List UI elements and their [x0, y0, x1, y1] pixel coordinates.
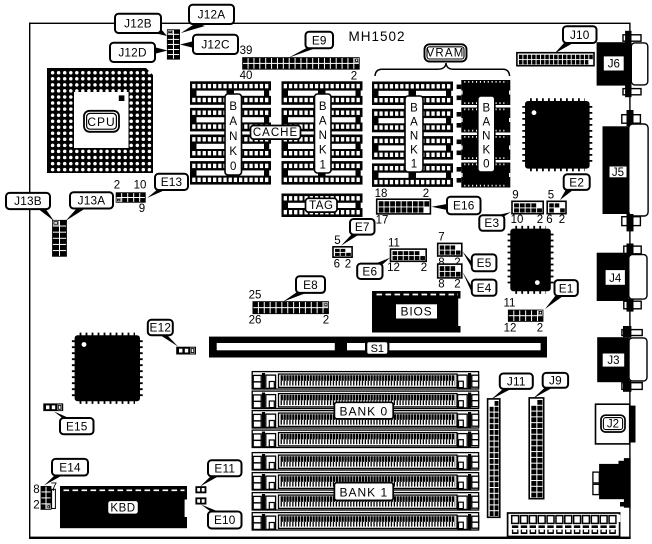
svg-text:18: 18: [375, 188, 388, 200]
svg-text:N: N: [229, 131, 237, 143]
svg-text:J12D: J12D: [118, 46, 146, 60]
svg-text:6: 6: [546, 214, 552, 226]
svg-text:N: N: [410, 130, 418, 142]
svg-text:E7: E7: [355, 220, 370, 234]
svg-text:26: 26: [249, 315, 262, 327]
svg-text:5: 5: [334, 235, 340, 247]
svg-text:A: A: [319, 115, 327, 127]
svg-text:J12A: J12A: [198, 8, 226, 22]
svg-text:BANK 0: BANK 0: [339, 404, 388, 418]
svg-text:J10: J10: [570, 28, 590, 42]
svg-text:BANK 1: BANK 1: [339, 485, 388, 499]
svg-text:CPU: CPU: [87, 115, 115, 129]
svg-text:2: 2: [454, 279, 460, 291]
svg-text:0: 0: [483, 158, 489, 170]
svg-text:E9: E9: [312, 33, 327, 47]
svg-text:J6: J6: [608, 59, 620, 71]
svg-text:B: B: [229, 101, 237, 113]
svg-text:2: 2: [559, 214, 565, 226]
svg-text:A: A: [410, 116, 418, 128]
svg-text:J13B: J13B: [14, 194, 42, 208]
svg-text:J4: J4: [609, 273, 622, 285]
svg-text:B: B: [319, 101, 327, 113]
svg-text:10: 10: [511, 214, 524, 226]
svg-text:11: 11: [504, 298, 516, 310]
svg-text:12: 12: [387, 262, 400, 274]
svg-text:2: 2: [33, 500, 39, 512]
svg-text:2: 2: [423, 188, 429, 200]
svg-text:MH1502: MH1502: [348, 29, 405, 44]
svg-text:2: 2: [537, 214, 543, 226]
svg-text:8: 8: [438, 279, 444, 291]
svg-text:2: 2: [351, 71, 357, 83]
svg-text:E8: E8: [303, 278, 318, 292]
svg-text:TAG: TAG: [309, 200, 333, 212]
svg-text:7: 7: [438, 232, 444, 244]
svg-text:E10: E10: [214, 513, 236, 527]
svg-text:E12: E12: [150, 321, 172, 335]
svg-text:17: 17: [376, 215, 389, 227]
svg-text:J13A: J13A: [78, 194, 106, 208]
svg-text:9: 9: [139, 203, 145, 215]
svg-text:0: 0: [230, 161, 236, 173]
svg-text:N: N: [482, 130, 490, 142]
svg-text:J12B: J12B: [124, 17, 152, 31]
svg-text:E1: E1: [559, 281, 574, 295]
svg-text:2: 2: [345, 258, 351, 270]
svg-text:2: 2: [421, 262, 427, 274]
svg-text:E3: E3: [484, 216, 499, 230]
svg-text:A: A: [229, 116, 237, 128]
svg-text:8: 8: [33, 484, 39, 496]
svg-text:9: 9: [512, 190, 518, 202]
svg-text:KBD: KBD: [110, 503, 135, 515]
svg-text:J5: J5: [612, 167, 624, 179]
svg-text:E15: E15: [66, 419, 88, 433]
svg-text:K: K: [229, 146, 237, 158]
svg-text:12: 12: [504, 322, 517, 334]
svg-text:10: 10: [134, 180, 147, 192]
svg-text:E2: E2: [569, 175, 584, 189]
svg-text:E13: E13: [161, 175, 183, 189]
svg-text:E16: E16: [453, 199, 475, 213]
svg-text:B: B: [482, 102, 490, 114]
svg-text:N: N: [319, 130, 327, 142]
svg-text:B: B: [410, 102, 418, 114]
svg-text:1: 1: [320, 159, 326, 171]
svg-text:5: 5: [548, 190, 554, 202]
svg-text:A: A: [482, 116, 490, 128]
svg-text:7: 7: [51, 482, 57, 494]
svg-text:J11: J11: [507, 374, 526, 388]
svg-text:25: 25: [249, 290, 262, 302]
svg-text:E5: E5: [477, 256, 492, 270]
svg-text:11: 11: [388, 237, 400, 249]
svg-text:J3: J3: [607, 355, 619, 367]
svg-text:BIOS: BIOS: [401, 305, 433, 319]
svg-text:J2: J2: [607, 418, 619, 430]
svg-text:K: K: [482, 144, 490, 156]
svg-text:6: 6: [334, 258, 340, 270]
svg-text:S1: S1: [371, 343, 384, 355]
svg-text:40: 40: [240, 70, 253, 82]
svg-text:1: 1: [411, 158, 417, 170]
svg-text:2: 2: [114, 180, 120, 192]
svg-text:39: 39: [240, 45, 253, 57]
svg-text:E6: E6: [362, 265, 377, 279]
svg-text:E4: E4: [477, 281, 492, 295]
svg-text:VRAM: VRAM: [426, 48, 464, 60]
svg-text:E14: E14: [59, 460, 81, 474]
svg-text:J12C: J12C: [201, 38, 230, 52]
svg-text:2: 2: [323, 315, 329, 327]
svg-text:K: K: [410, 144, 418, 156]
svg-text:CACHE: CACHE: [253, 127, 298, 139]
svg-text:E11: E11: [214, 462, 235, 476]
svg-text:2: 2: [537, 322, 543, 334]
svg-text:J9: J9: [549, 374, 562, 388]
svg-text:K: K: [319, 145, 327, 157]
